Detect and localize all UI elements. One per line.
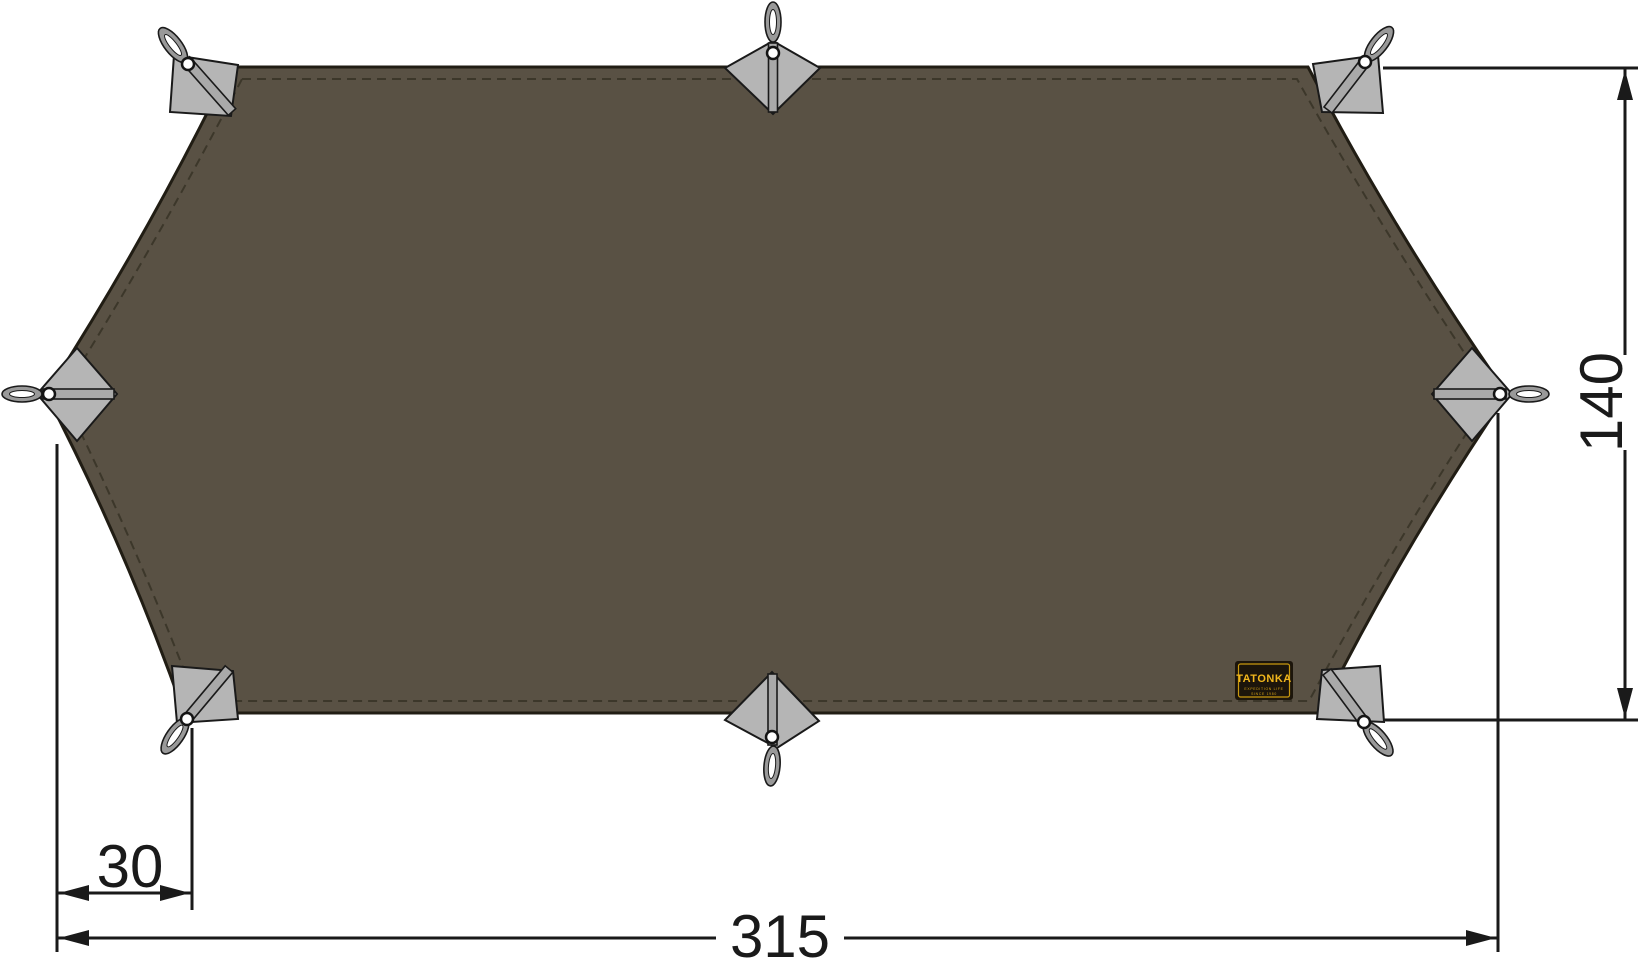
brand-tagline-text: EXPEDITION LIFE bbox=[1244, 687, 1283, 691]
tarp-technical-drawing: TATONKA EXPEDITION LIFE SINCE 1980 315 1… bbox=[0, 0, 1640, 960]
grommet bbox=[1359, 56, 1371, 68]
attachment-top-left bbox=[153, 23, 238, 116]
arrow-right bbox=[1466, 930, 1496, 946]
attachment-bottom-right bbox=[1317, 666, 1398, 761]
arrow-up bbox=[1617, 70, 1633, 100]
grommet bbox=[182, 58, 194, 70]
arrow-right bbox=[160, 885, 190, 901]
dimension-corner-offset: 30 bbox=[57, 728, 192, 910]
brand-patch: TATONKA EXPEDITION LIFE SINCE 1980 bbox=[1235, 661, 1293, 700]
tarp-fabric bbox=[46, 67, 1507, 713]
dimension-label-width: 315 bbox=[730, 903, 830, 960]
grommet bbox=[767, 47, 779, 59]
dimension-label-corner-offset: 30 bbox=[97, 833, 164, 900]
arrow-down bbox=[1617, 688, 1633, 718]
diagram-canvas: TATONKA EXPEDITION LIFE SINCE 1980 315 1… bbox=[0, 0, 1640, 960]
arrow-left bbox=[59, 885, 89, 901]
webbing-loop bbox=[1509, 386, 1549, 402]
brand-logo-text: TATONKA bbox=[1236, 673, 1291, 685]
grommet bbox=[1494, 388, 1506, 400]
webbing-loop bbox=[2, 386, 42, 402]
webbing-loop bbox=[765, 2, 781, 42]
arrow-left bbox=[59, 930, 89, 946]
brand-since-text: SINCE 1980 bbox=[1251, 692, 1277, 696]
grommet bbox=[181, 713, 193, 725]
dimension-label-height: 140 bbox=[1568, 352, 1635, 452]
attachment-bottom-left bbox=[156, 666, 238, 758]
grommet bbox=[766, 731, 778, 743]
webbing-loop bbox=[762, 745, 781, 786]
grommet bbox=[1358, 716, 1370, 728]
tarp-outline bbox=[46, 67, 1507, 713]
grommet bbox=[43, 388, 55, 400]
